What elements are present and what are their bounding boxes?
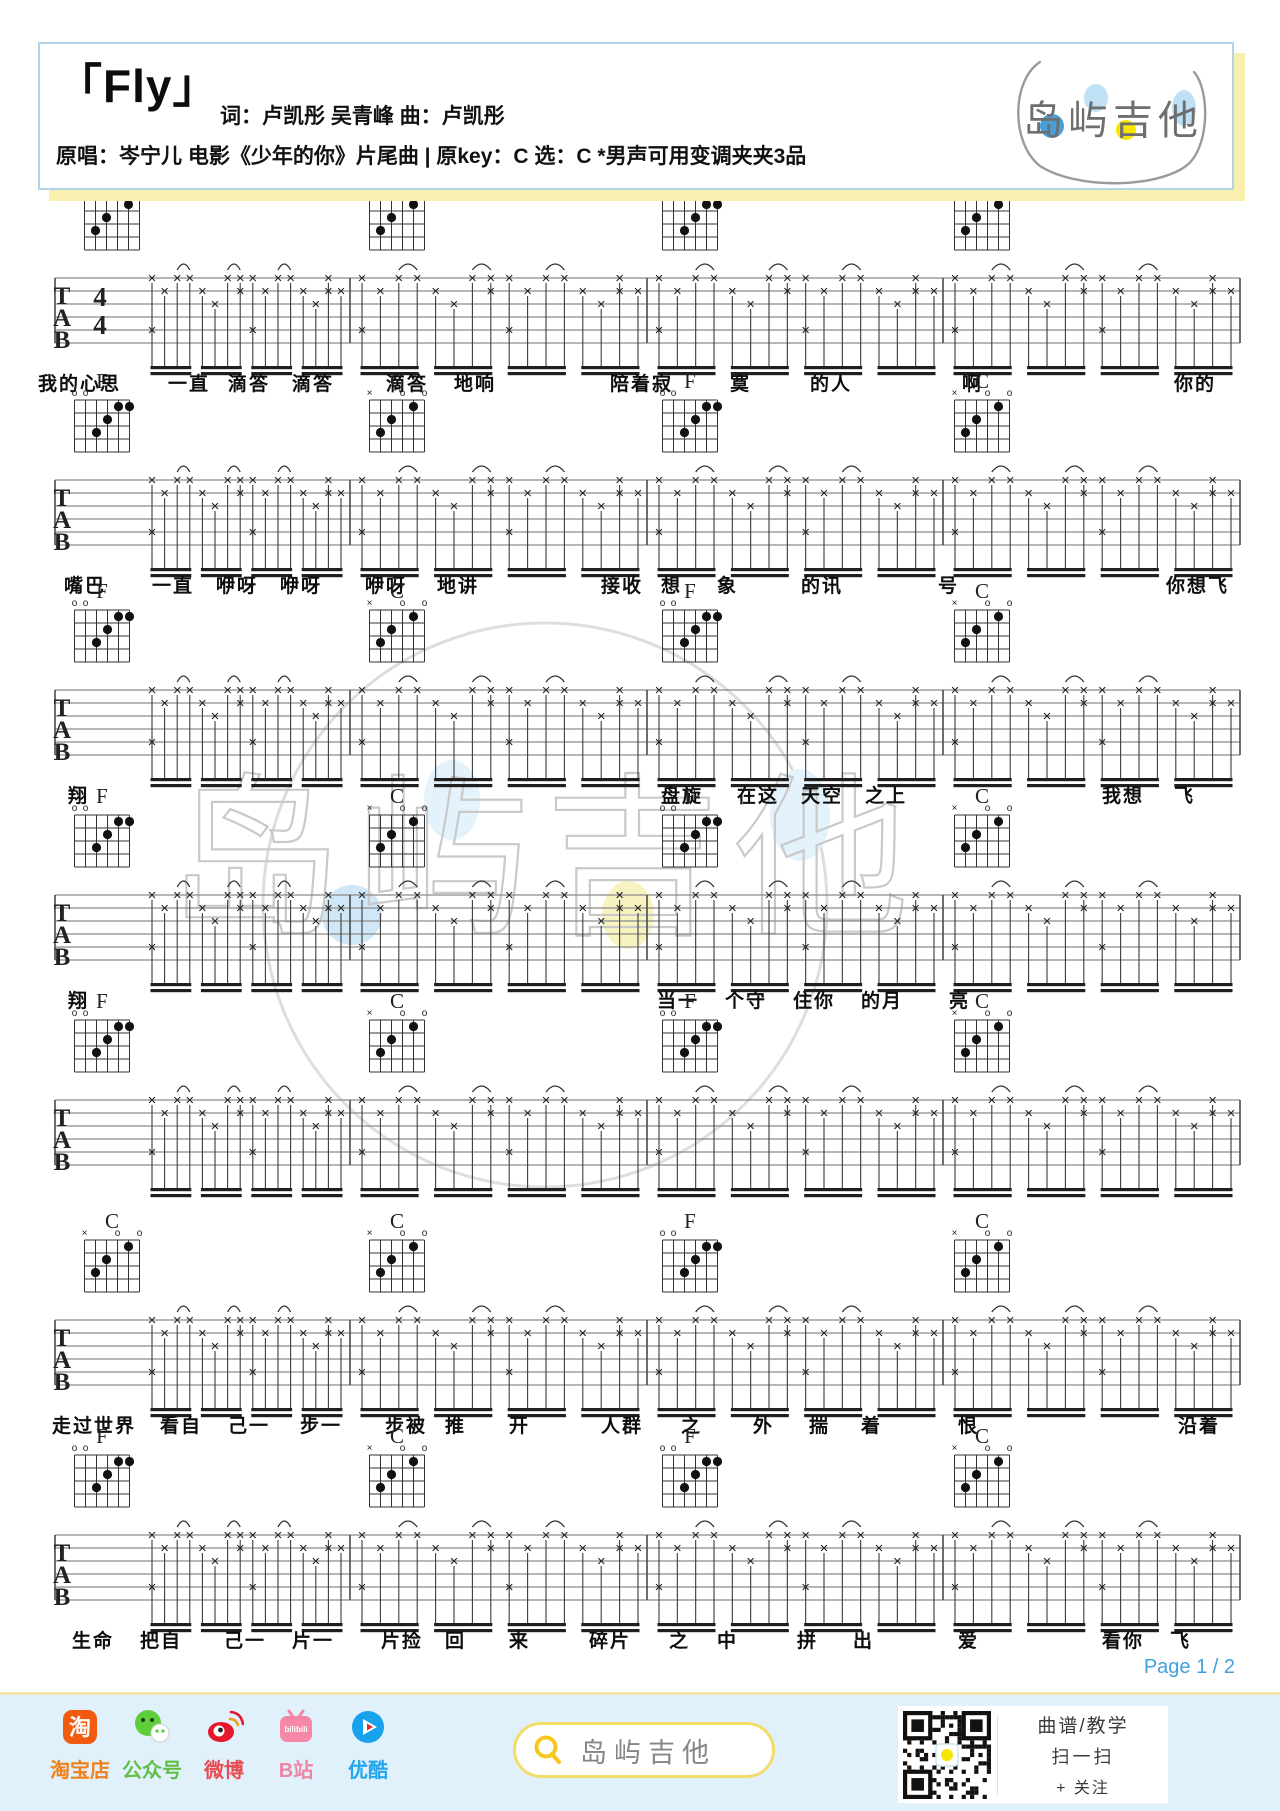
svg-text:×: × [856,270,865,287]
lyric: 之 [669,1629,690,1652]
svg-text:×: × [261,485,270,502]
svg-text:×: × [691,1312,700,1329]
svg-text:×: × [930,1105,939,1122]
lyric: 沿着 [1178,1414,1220,1437]
svg-text:×: × [1061,270,1070,287]
svg-text:×: × [431,1325,440,1342]
search-pill[interactable]: 岛屿吉他 [513,1722,775,1778]
svg-text:×: × [951,524,960,541]
svg-text:×: × [523,1540,532,1557]
svg-text:×: × [394,682,403,699]
svg-text:×: × [875,1325,884,1342]
svg-text:×: × [746,1118,755,1135]
svg-text:×: × [969,900,978,917]
svg-text:×: × [1153,472,1162,489]
svg-text:o: o [83,598,89,609]
svg-text:×: × [1098,734,1107,751]
lyric: 个守 [724,989,767,1012]
svg-text:×: × [248,322,257,339]
svg-text:×: × [358,472,367,489]
lyric: 把自 [140,1629,182,1652]
svg-text:×: × [286,1527,295,1544]
svg-text:o: o [72,803,78,814]
footer-link-wechat[interactable]: 公众号 [116,1707,188,1783]
svg-text:×: × [261,283,270,300]
svg-text:×: × [211,296,220,313]
svg-text:×: × [223,270,232,287]
svg-text:×: × [1227,485,1236,502]
svg-text:×: × [801,1364,810,1381]
svg-text:×: × [413,682,422,699]
svg-text:×: × [337,900,346,917]
svg-text:×: × [710,887,719,904]
svg-text:×: × [311,1338,320,1355]
svg-text:×: × [468,270,477,287]
svg-text:×: × [198,283,207,300]
svg-text:o: o [400,803,406,814]
svg-text:×: × [160,485,169,502]
svg-text:×: × [358,1092,367,1109]
svg-text:×: × [211,498,220,515]
svg-text:×: × [875,1105,884,1122]
svg-text:×: × [450,1338,459,1355]
svg-text:×: × [1098,1527,1107,1544]
svg-text:×: × [337,1540,346,1557]
svg-text:×: × [367,388,373,399]
svg-text:×: × [765,1312,774,1329]
svg-text:×: × [655,939,664,956]
svg-text:×: × [324,900,333,917]
footer-link-label: 公众号 [116,1754,188,1783]
svg-text:×: × [1190,296,1199,313]
svg-text:×: × [911,283,920,300]
svg-text:×: × [951,1527,960,1544]
svg-text:o: o [671,1008,677,1019]
footer-link-taobao[interactable]: 淘淘宝店 [44,1707,116,1783]
svg-text:×: × [248,887,257,904]
lyric: 片一 [292,1629,334,1652]
svg-text:×: × [765,887,774,904]
svg-text:×: × [286,1092,295,1109]
svg-text:×: × [160,1540,169,1557]
svg-text:×: × [185,887,194,904]
svg-text:×: × [358,939,367,956]
svg-text:×: × [376,283,385,300]
svg-text:×: × [542,682,551,699]
lyric: 碎片 [589,1629,631,1652]
lyric: 看自 [159,1414,202,1437]
svg-text:×: × [856,887,865,904]
svg-text:×: × [728,485,737,502]
lyric: 接收 [601,574,643,597]
footer-link-weibo[interactable]: 微博 [188,1707,260,1783]
svg-text:×: × [1098,887,1107,904]
svg-text:×: × [261,695,270,712]
svg-text:×: × [838,270,847,287]
svg-text:×: × [911,695,920,712]
svg-text:×: × [893,1118,902,1135]
svg-text:×: × [198,1325,207,1342]
svg-text:×: × [930,900,939,917]
svg-text:×: × [394,1527,403,1544]
svg-text:×: × [523,695,532,712]
svg-text:×: × [655,1364,664,1381]
sheet-music-page: 岛屿吉他TAB44C×ooC×ooFooC×oo××××××××××××××××… [0,0,1280,1811]
svg-text:o: o [660,1443,666,1454]
lyric: 我的心 [38,372,101,395]
svg-text:×: × [1171,485,1180,502]
lyric: 地响 [454,372,496,395]
footer-link-bilibili[interactable]: bilibiliB站 [260,1707,332,1783]
lyric: 滴答 [292,372,334,395]
svg-text:×: × [710,1092,719,1109]
svg-text:×: × [615,485,624,502]
svg-text:×: × [486,695,495,712]
svg-text:×: × [951,939,960,956]
svg-text:o: o [1007,388,1013,399]
svg-text:×: × [299,695,308,712]
svg-text:×: × [728,1325,737,1342]
svg-text:×: × [655,887,664,904]
svg-text:o: o [660,803,666,814]
svg-text:×: × [367,598,373,609]
svg-text:×: × [765,682,774,699]
lyric: 揣 [809,1414,830,1437]
svg-text:×: × [801,524,810,541]
svg-text:×: × [1061,1092,1070,1109]
svg-text:×: × [1208,900,1217,917]
svg-text:×: × [951,682,960,699]
svg-text:×: × [248,1527,257,1544]
svg-text:×: × [1079,1540,1088,1557]
svg-text:×: × [838,1312,847,1329]
svg-text:×: × [358,322,367,339]
svg-text:×: × [358,1312,367,1329]
svg-text:×: × [1208,1105,1217,1122]
svg-text:×: × [930,485,939,502]
lyric: 人群 [601,1414,643,1437]
svg-text:×: × [413,1312,422,1329]
svg-text:×: × [765,472,774,489]
svg-text:×: × [597,913,606,930]
svg-text:×: × [431,900,440,917]
svg-text:o: o [83,1443,89,1454]
svg-text:F: F [96,784,108,808]
svg-text:o: o [72,1008,78,1019]
lyric: 走过世界 [52,1415,136,1437]
svg-text:×: × [820,1325,829,1342]
svg-text:B: B [54,327,71,354]
svg-text:×: × [211,913,220,930]
svg-text:×: × [1135,270,1144,287]
svg-text:F: F [96,579,108,603]
svg-text:F: F [96,369,108,393]
lyric: 号 [938,575,959,597]
svg-text:×: × [673,1105,682,1122]
svg-text:×: × [1024,485,1033,502]
svg-text:×: × [1116,1105,1125,1122]
svg-text:×: × [236,1325,245,1342]
lyric: 地讲 [437,574,479,597]
svg-text:×: × [728,900,737,917]
svg-text:×: × [930,1540,939,1557]
svg-text:×: × [1079,900,1088,917]
svg-text:×: × [248,1312,257,1329]
svg-text:o: o [671,1228,677,1239]
svg-text:×: × [358,734,367,751]
svg-text:o: o [83,803,89,814]
lyric: 想 [661,574,682,597]
svg-text:×: × [431,283,440,300]
svg-text:×: × [615,1105,624,1122]
svg-text:×: × [1098,1144,1107,1161]
svg-text:×: × [1227,283,1236,300]
svg-text:×: × [148,682,157,699]
svg-text:×: × [875,900,884,917]
svg-text:×: × [1006,472,1015,489]
svg-text:×: × [274,1527,283,1544]
svg-text:×: × [634,1105,643,1122]
svg-text:×: × [1171,1540,1180,1557]
svg-text:×: × [820,485,829,502]
svg-text:×: × [173,270,182,287]
svg-text:×: × [691,682,700,699]
svg-text:×: × [673,695,682,712]
svg-text:×: × [173,887,182,904]
lyric: 的人 [810,372,852,395]
lyric: 来 [509,1630,530,1652]
lyric: 飞 [1174,786,1195,807]
svg-text:×: × [358,1364,367,1381]
svg-text:B: B [54,739,71,766]
svg-text:×: × [765,270,774,287]
svg-text:×: × [1208,1325,1217,1342]
svg-text:×: × [148,1364,157,1381]
lyric: 己一 [224,1631,266,1652]
svg-text:×: × [560,270,569,287]
lyric: 一直 [168,372,210,395]
svg-text:×: × [542,1092,551,1109]
svg-text:×: × [951,887,960,904]
svg-text:×: × [801,270,810,287]
svg-text:×: × [337,1105,346,1122]
lyric: 的月 [861,989,903,1012]
svg-text:×: × [615,1540,624,1557]
svg-text:o: o [985,388,991,399]
svg-text:×: × [1190,498,1199,515]
svg-text:×: × [746,913,755,930]
svg-text:×: × [1135,1092,1144,1109]
svg-text:×: × [450,498,459,515]
svg-text:×: × [542,1312,551,1329]
svg-text:×: × [468,472,477,489]
svg-text:×: × [655,270,664,287]
svg-text:×: × [952,803,958,814]
svg-text:×: × [1098,1579,1107,1596]
svg-text:×: × [1135,1527,1144,1544]
svg-text:×: × [987,1092,996,1109]
svg-text:×: × [261,1540,270,1557]
svg-text:×: × [358,1527,367,1544]
lyric: 出 [853,1629,874,1652]
svg-text:×: × [542,1527,551,1544]
svg-text:×: × [952,1008,958,1019]
svg-text:×: × [634,695,643,712]
svg-text:×: × [376,1105,385,1122]
svg-text:×: × [1153,1527,1162,1544]
svg-text:×: × [486,283,495,300]
svg-text:F: F [684,579,696,603]
svg-text:o: o [671,803,677,814]
svg-text:×: × [185,1527,194,1544]
svg-text:×: × [413,1527,422,1544]
svg-text:o: o [1007,1228,1013,1239]
svg-text:×: × [560,887,569,904]
svg-text:×: × [505,322,514,339]
svg-text:×: × [236,283,245,300]
svg-text:o: o [400,1443,406,1454]
svg-text:×: × [148,1527,157,1544]
svg-text:×: × [1116,695,1125,712]
lyric: 寞 [730,372,751,395]
svg-text:×: × [261,900,270,917]
svg-text:×: × [185,270,194,287]
svg-text:×: × [838,1527,847,1544]
svg-text:×: × [969,485,978,502]
svg-text:×: × [1171,283,1180,300]
svg-text:×: × [673,485,682,502]
svg-text:×: × [185,682,194,699]
tab-system-2: TABFooC×ooFooC×oo×××××××××××××××××××××××… [53,369,1240,597]
footer-links: 淘淘宝店公众号微博bilibiliB站优酷 [44,1707,404,1783]
svg-text:×: × [691,270,700,287]
svg-text:×: × [856,1527,865,1544]
svg-text:×: × [1043,1338,1052,1355]
footer-link-label: 淘宝店 [44,1754,116,1783]
svg-text:F: F [684,989,696,1013]
svg-text:B: B [54,529,71,556]
svg-text:×: × [236,485,245,502]
svg-text:×: × [911,1325,920,1342]
svg-text:×: × [1006,887,1015,904]
svg-text:×: × [820,1105,829,1122]
svg-text:o: o [422,598,428,609]
svg-text:×: × [367,1008,373,1019]
svg-text:×: × [248,472,257,489]
svg-text:×: × [236,1540,245,1557]
lyric: 你的 [1173,372,1216,395]
svg-text:×: × [394,1312,403,1329]
song-subtitle: 原唱：岑宁儿 电影《少年的你》片尾曲 | 原key：C 选：C *男声可用变调夹… [56,140,806,170]
svg-text:×: × [505,887,514,904]
svg-text:×: × [223,682,232,699]
svg-text:×: × [486,900,495,917]
svg-text:o: o [72,1443,78,1454]
svg-text:×: × [248,939,257,956]
svg-text:×: × [394,270,403,287]
svg-text:×: × [148,524,157,541]
svg-text:×: × [358,1579,367,1596]
svg-text:×: × [801,1527,810,1544]
footer-link-youku[interactable]: 优酷 [332,1707,404,1783]
svg-text:×: × [710,1312,719,1329]
svg-text:×: × [1098,682,1107,699]
svg-text:×: × [311,708,320,725]
svg-text:×: × [691,1527,700,1544]
svg-text:o: o [671,1443,677,1454]
svg-text:×: × [223,472,232,489]
lyric: 之上 [865,784,907,807]
svg-text:4: 4 [93,282,107,312]
svg-text:×: × [1098,322,1107,339]
svg-text:o: o [985,1008,991,1019]
svg-text:×: × [248,524,257,541]
svg-text:×: × [413,472,422,489]
svg-text:×: × [710,472,719,489]
svg-text:×: × [560,1312,569,1329]
svg-text:×: × [248,682,257,699]
svg-text:o: o [400,598,406,609]
svg-text:B: B [54,1584,71,1611]
svg-text:×: × [223,1527,232,1544]
svg-text:×: × [173,472,182,489]
svg-text:×: × [952,1443,958,1454]
svg-text:×: × [505,1364,514,1381]
qr-caption: 曲谱/教学 扫一扫 + 关注 [998,1711,1168,1798]
svg-text:×: × [1153,682,1162,699]
svg-text:×: × [969,695,978,712]
svg-text:×: × [783,1325,792,1342]
svg-text:×: × [578,900,587,917]
svg-text:×: × [248,1144,257,1161]
svg-text:×: × [1079,1325,1088,1342]
svg-text:×: × [1043,913,1052,930]
svg-text:×: × [198,485,207,502]
svg-text:×: × [1043,708,1052,725]
svg-text:×: × [801,734,810,751]
tab-system-7: TABFooC×ooFooC×oo×××××××××××××××××××××××… [53,1424,1240,1652]
svg-text:×: × [673,1540,682,1557]
svg-text:×: × [1024,1325,1033,1342]
svg-text:×: × [1006,1312,1015,1329]
svg-text:×: × [838,472,847,489]
svg-text:o: o [400,1228,406,1239]
lyric: 你想飞 [1165,574,1229,597]
svg-text:×: × [597,1338,606,1355]
svg-text:×: × [1079,1105,1088,1122]
svg-text:×: × [394,1092,403,1109]
svg-text:×: × [875,1540,884,1557]
svg-text:o: o [985,1228,991,1239]
svg-text:×: × [358,270,367,287]
svg-text:×: × [1135,682,1144,699]
svg-text:×: × [248,270,257,287]
lyric: 盘旋 [661,784,703,807]
svg-text:×: × [801,472,810,489]
svg-text:×: × [173,1092,182,1109]
svg-text:×: × [274,887,283,904]
svg-text:×: × [969,1540,978,1557]
svg-text:×: × [337,485,346,502]
svg-text:×: × [358,887,367,904]
svg-text:×: × [505,1579,514,1596]
svg-text:×: × [560,682,569,699]
svg-text:×: × [893,913,902,930]
svg-text:×: × [523,283,532,300]
svg-text:o: o [985,1443,991,1454]
svg-text:×: × [337,283,346,300]
svg-text:×: × [597,296,606,313]
